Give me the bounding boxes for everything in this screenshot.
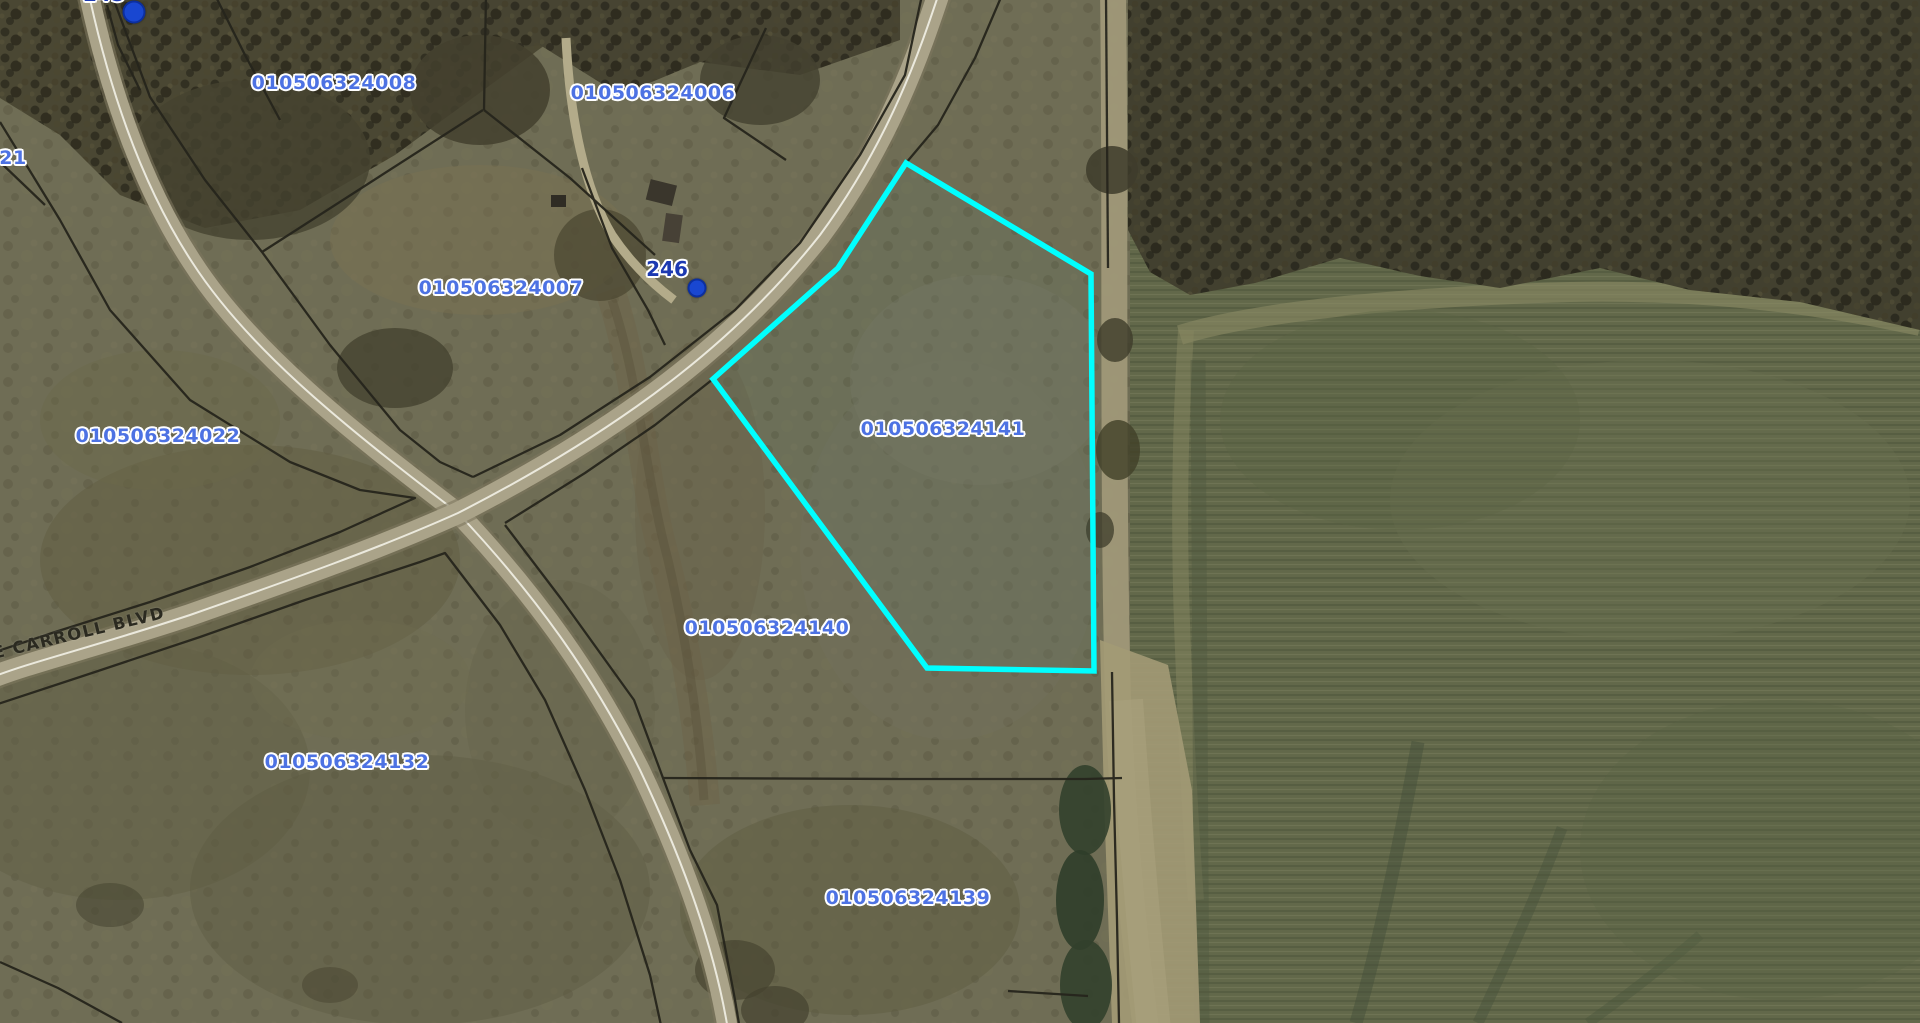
parcel-label-partial-21[interactable]: 21 [0, 147, 27, 169]
address-label-partial-245: 245 [83, 0, 125, 6]
satellite-basemap [0, 0, 1920, 1023]
parcel-label-010506324139[interactable]: 010506324139 [826, 887, 991, 909]
parcel-label-010506324132[interactable]: 010506324132 [265, 751, 430, 773]
parcel-label-010506324140[interactable]: 010506324140 [685, 617, 850, 639]
address-label-246: 246 [646, 257, 688, 281]
address-point-marker[interactable] [123, 1, 146, 24]
address-point-marker[interactable] [688, 279, 707, 298]
parcel-label-010506324007[interactable]: 010506324007 [419, 277, 584, 299]
parcel-label-010506324022[interactable]: 010506324022 [76, 425, 241, 447]
parcel-label-010506324008[interactable]: 010506324008 [252, 72, 417, 94]
east-field [1130, 235, 1920, 1023]
parcel-label-010506324006[interactable]: 010506324006 [571, 82, 736, 104]
map-canvas[interactable]: 010506324008 010506324006 010506324007 0… [0, 0, 1920, 1023]
parcel-label-010506324141[interactable]: 010506324141 [861, 418, 1026, 440]
